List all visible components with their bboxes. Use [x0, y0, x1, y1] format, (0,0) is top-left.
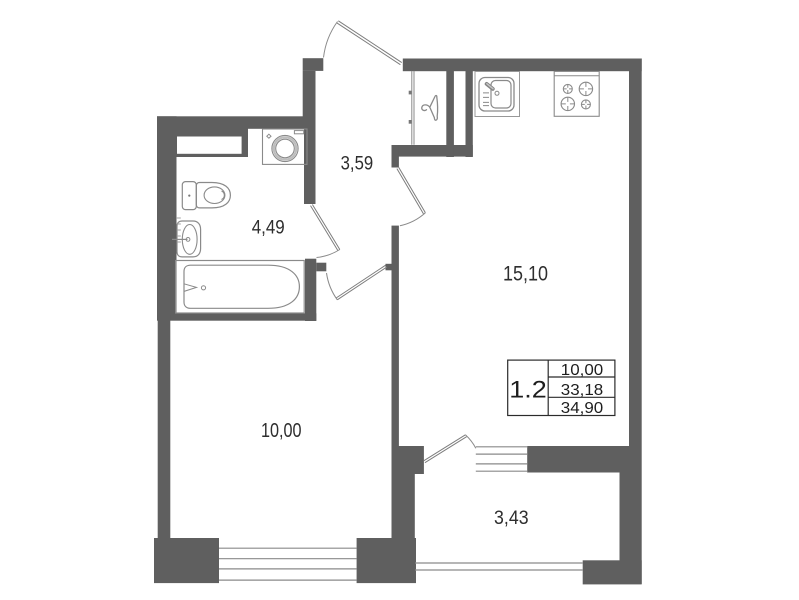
svg-text:10,00: 10,00	[261, 420, 302, 442]
svg-text:33,18: 33,18	[561, 382, 604, 399]
svg-text:1.2: 1.2	[509, 376, 547, 403]
svg-text:34,90: 34,90	[561, 400, 604, 417]
svg-text:3,43: 3,43	[494, 507, 529, 529]
svg-text:3,59: 3,59	[341, 152, 374, 174]
svg-text:15,10: 15,10	[503, 263, 548, 286]
svg-text:10,00: 10,00	[561, 362, 604, 379]
svg-text:4,49: 4,49	[252, 217, 285, 239]
